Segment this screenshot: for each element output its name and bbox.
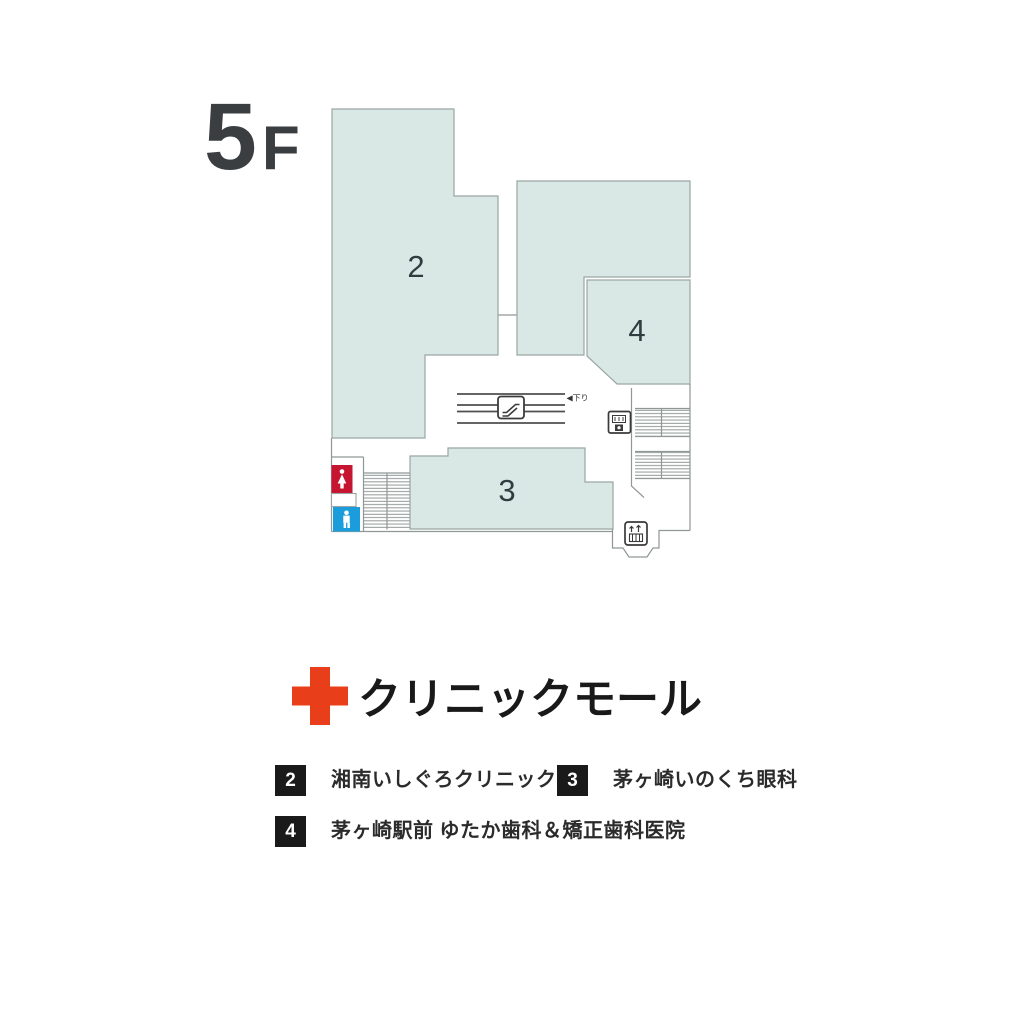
exit-vestibule (613, 529, 691, 557)
legend-label-4: 茅ヶ崎駅前 ゆたか歯科＆矯正歯科医院 (331, 816, 686, 847)
room-2-number: 2 (407, 249, 424, 284)
floor-label: 5 F (204, 97, 300, 178)
clinic-mall-title: クリニックモール (292, 665, 702, 727)
floor-suffix: F (262, 123, 300, 176)
title-text: クリニックモール (358, 665, 702, 727)
stairs-right-wall (632, 388, 645, 498)
toilet-utility-box (332, 494, 357, 507)
stairs-hatching (635, 452, 690, 479)
stairs-right (632, 388, 691, 498)
room-4-number: 4 (628, 313, 645, 348)
toilet-block (332, 465, 361, 532)
legend-chip-2: 2 (275, 765, 306, 796)
legend-chip-4: 4 (275, 816, 306, 847)
floor-number: 5 (204, 97, 255, 178)
exit-elevator-icon (625, 522, 647, 545)
room-3-number: 3 (498, 473, 515, 508)
floor-map: 2 4 3 (300, 80, 740, 580)
legend-label-3: 茅ヶ崎いのくち眼科 (613, 765, 798, 796)
stairs-hatching (635, 409, 690, 437)
stairs-left (364, 473, 411, 530)
elevator-icon (609, 412, 631, 434)
escalator-icon (498, 397, 524, 419)
red-cross-icon (292, 667, 348, 725)
legend-label-2: 湘南いしぐろクリニック (331, 765, 557, 796)
floor-guide-page: 5 F 2 4 3 (0, 0, 1024, 1024)
legend-chip-3: 3 (557, 765, 588, 796)
escalator-down-label: ◀下り (567, 394, 589, 403)
